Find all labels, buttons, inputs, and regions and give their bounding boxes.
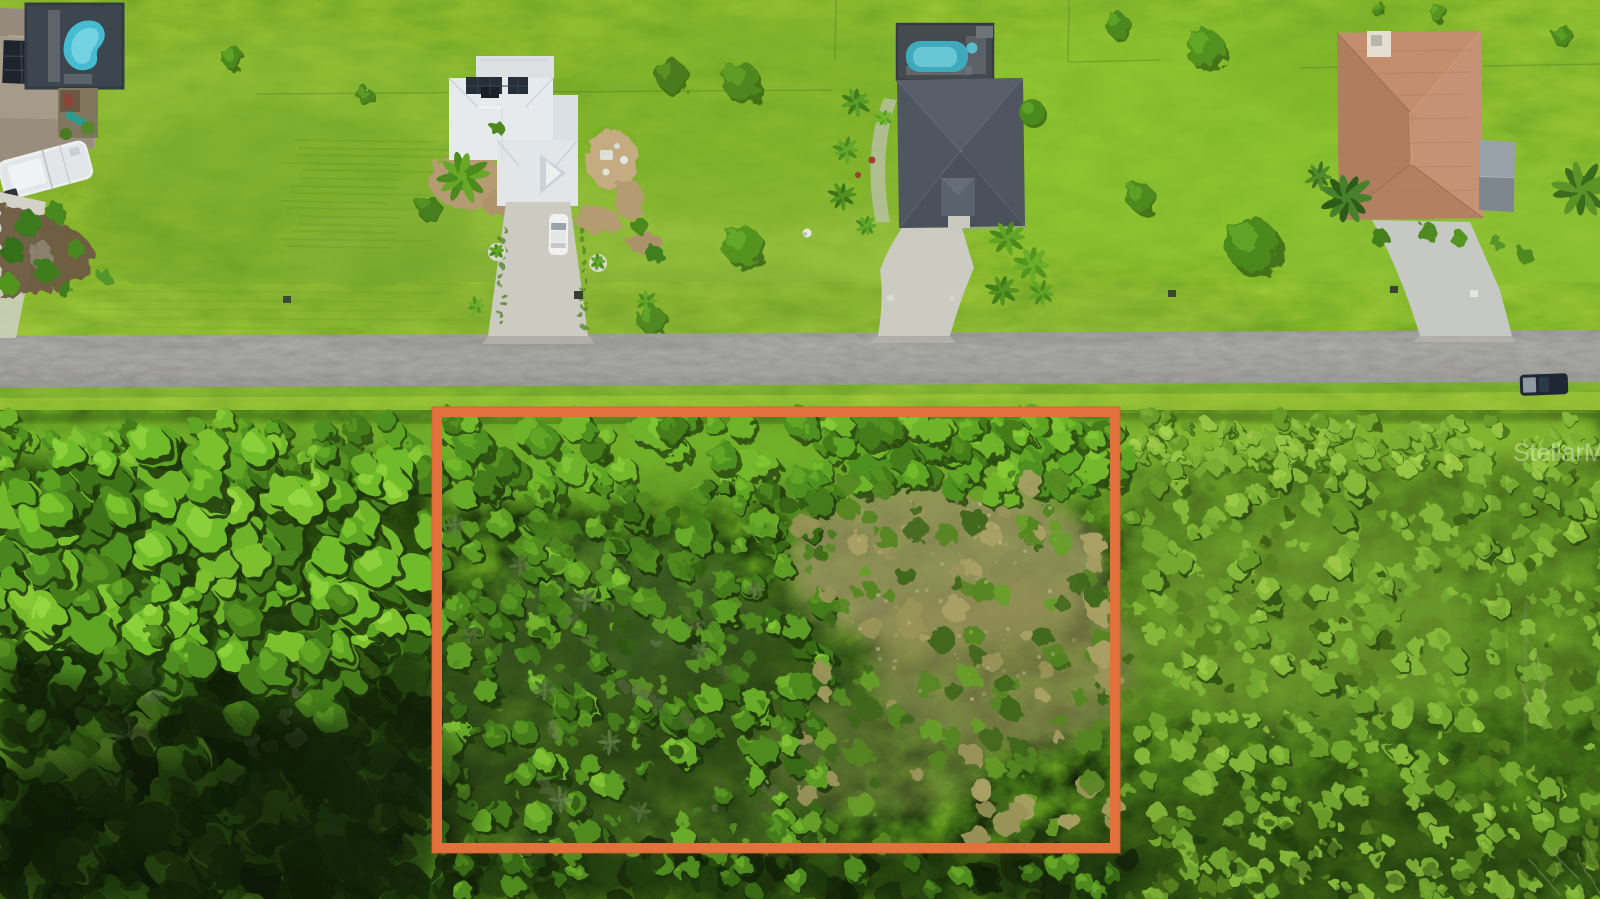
svg-text:StellarMLS: StellarMLS: [1513, 439, 1600, 467]
